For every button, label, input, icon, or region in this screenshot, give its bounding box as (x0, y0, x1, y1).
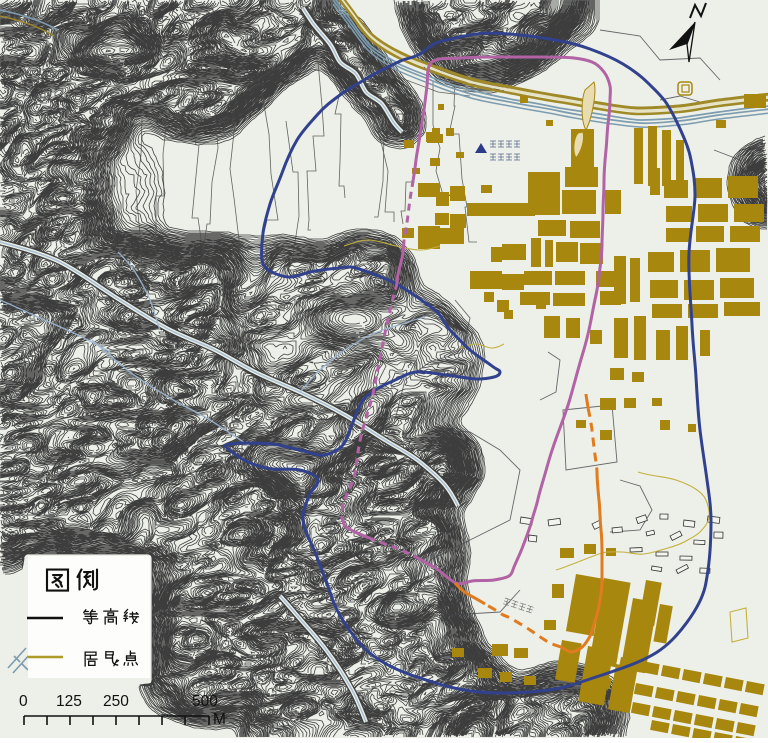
svg-text:500: 500 (192, 693, 218, 710)
svg-text:M: M (213, 711, 226, 728)
svg-text:0: 0 (19, 693, 28, 710)
svg-text:250: 250 (103, 693, 129, 710)
svg-text:125: 125 (56, 693, 82, 710)
